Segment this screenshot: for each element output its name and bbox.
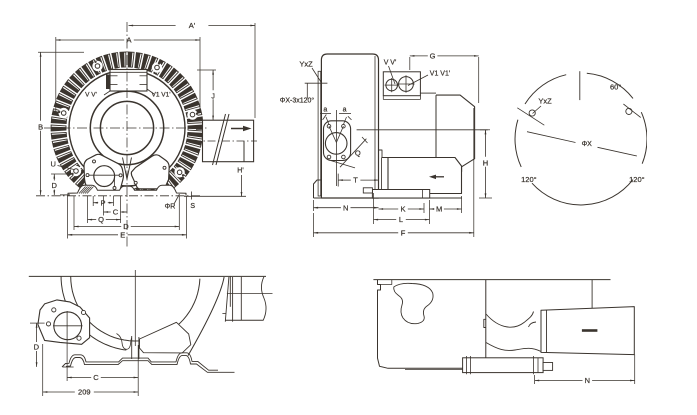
svg-text:N: N (585, 376, 590, 385)
svg-text:D: D (51, 181, 57, 190)
svg-text:B: B (38, 123, 43, 132)
svg-text:V1 V1': V1 V1' (152, 92, 171, 99)
svg-text:H': H' (237, 168, 243, 175)
svg-text:V V': V V' (384, 60, 397, 67)
svg-text:C: C (93, 373, 99, 382)
svg-text:YxZ: YxZ (299, 60, 313, 69)
svg-text:120°: 120° (521, 175, 537, 184)
svg-text:J: J (211, 94, 215, 101)
svg-text:G: G (430, 52, 436, 61)
svg-text:Q: Q (98, 215, 104, 224)
svg-text:120°: 120° (629, 175, 645, 184)
svg-text:M: M (436, 205, 442, 214)
svg-text:V V': V V' (85, 92, 97, 99)
svg-text:ΦR: ΦR (165, 204, 176, 211)
svg-text:K: K (400, 205, 405, 214)
svg-text:ΦX: ΦX (582, 141, 593, 148)
svg-text:ΦX-3x120°: ΦX-3x120° (280, 97, 315, 105)
svg-text:YxZ: YxZ (538, 97, 552, 106)
svg-text:S: S (190, 203, 195, 210)
svg-text:T: T (353, 176, 358, 185)
svg-text:U: U (50, 160, 55, 169)
svg-text:D: D (34, 343, 40, 352)
svg-text:H: H (483, 159, 488, 168)
svg-text:E: E (120, 230, 125, 239)
svg-text:P: P (100, 198, 105, 207)
svg-text:F: F (401, 228, 406, 237)
svg-text:60°: 60° (610, 82, 621, 91)
svg-text:a: a (343, 107, 347, 114)
svg-text:A': A' (189, 21, 196, 30)
svg-text:L: L (399, 215, 403, 224)
svg-text:N: N (343, 203, 348, 212)
svg-text:209: 209 (78, 388, 91, 397)
svg-text:Q: Q (355, 149, 361, 158)
svg-text:V1 V1': V1 V1' (430, 71, 450, 78)
svg-text:a: a (323, 107, 327, 114)
svg-text:A: A (126, 36, 131, 45)
svg-text:C: C (113, 208, 119, 217)
